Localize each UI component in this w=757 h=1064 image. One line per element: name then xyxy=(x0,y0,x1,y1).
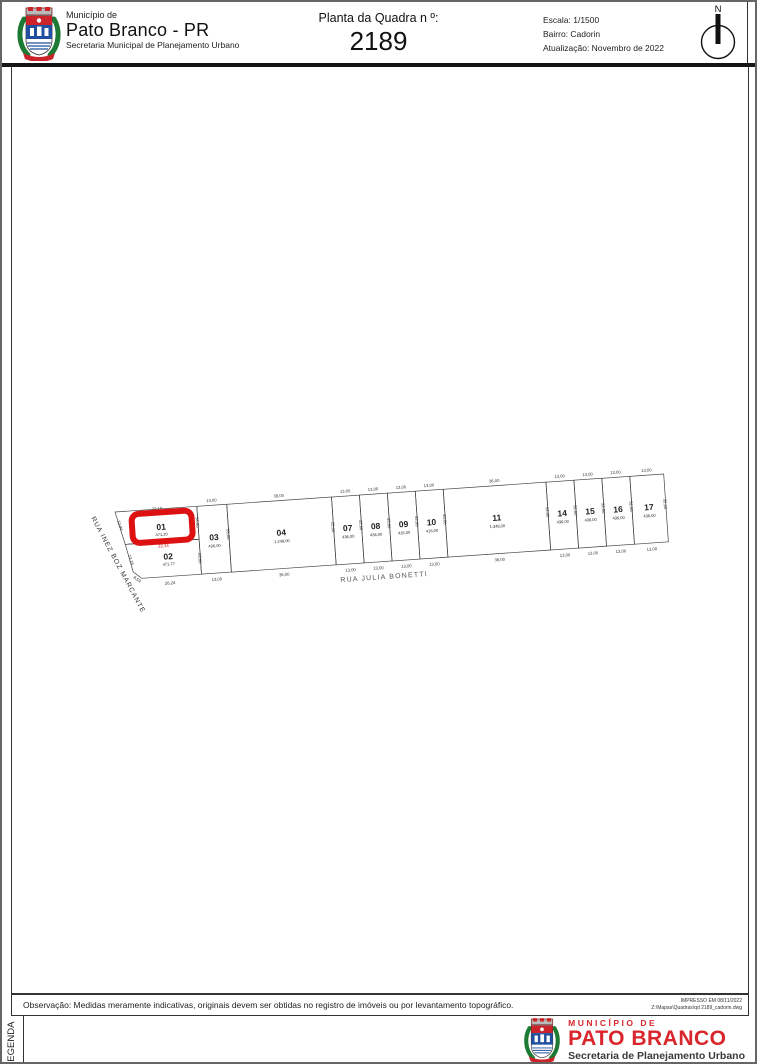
updated-label: Atualização: Novembro de 2022 xyxy=(543,41,664,55)
lot-number: 14 xyxy=(557,508,567,519)
sheet-title: Planta da Quadra n º: xyxy=(319,11,439,25)
legend-label: LEGENDA xyxy=(6,1022,17,1064)
dim-bottom: 13,00 xyxy=(373,565,384,571)
source-file-path: Z:\Mapas\Quadras\qd 2189_cadorin.dwg xyxy=(651,1005,742,1012)
header: Município de Pato Branco - PR Secretaria… xyxy=(2,2,755,63)
dim-top: 39,00 xyxy=(273,493,284,499)
footer: LEGENDA MUNICÍPIO DE PATO BRANCO Secret xyxy=(2,1016,755,1064)
lot-area: 1.248,00 xyxy=(274,538,291,544)
lot-area: 436,00 xyxy=(342,533,355,539)
lot-number: 11 xyxy=(492,512,502,523)
info-block: Escala: 1/1500 Bairro: Cadorin Atualizaç… xyxy=(543,13,664,55)
footer-logo: MUNICÍPIO DE PATO BRANCO Secretaria de P… xyxy=(523,1018,745,1063)
observation-note: Observação: Medidas meramente indicativa… xyxy=(23,1000,513,1010)
dim-top: 13,00 xyxy=(396,484,407,490)
lot-number: 16 xyxy=(613,504,623,515)
dim-bottom: 13,00 xyxy=(616,548,627,554)
lot-number: 01 xyxy=(156,522,166,533)
lot-area: 1.348,00 xyxy=(489,523,506,529)
title-block: Planta da Quadra n º: 2189 xyxy=(319,11,439,57)
lot-number: 03 xyxy=(209,532,219,543)
coat-of-arms-icon xyxy=(16,7,62,61)
dim-corner-chamfer: 8,59 xyxy=(132,575,142,584)
coat-of-arms-icon xyxy=(523,1018,561,1063)
block-plat-map: RUA INEZ BOZ MARCANTE 01 471,20 02 471,7… xyxy=(77,442,697,642)
dim-bottom: 13,00 xyxy=(345,567,356,573)
lot-area: 436,00 xyxy=(612,515,625,521)
dim-top: 13,00 xyxy=(424,482,435,488)
lot-area: 436,00 xyxy=(208,543,221,549)
drawing-area: RUA INEZ BOZ MARCANTE 01 471,20 02 471,7… xyxy=(11,66,749,994)
dim-top: 13,00 xyxy=(582,471,593,477)
legend-divider-line xyxy=(23,1016,24,1064)
dim-side: 32,00 xyxy=(662,499,668,510)
dim-top: 13,00 xyxy=(206,497,217,503)
plan-sheet: Município de Pato Branco - PR Secretaria… xyxy=(0,0,757,1064)
lot-number: 10 xyxy=(426,517,436,528)
dim-bottom: 36,00 xyxy=(494,557,505,563)
dim-top: 13,00 xyxy=(368,486,379,492)
municipality-block: Município de Pato Branco - PR Secretaria… xyxy=(66,11,239,50)
lot-area: 436,00 xyxy=(584,517,597,523)
street-label-left: RUA INEZ BOZ MARCANTE xyxy=(89,516,146,615)
header-border-line xyxy=(747,2,748,66)
dim-top: 36,00 xyxy=(489,478,500,484)
lot-number: 08 xyxy=(371,521,381,532)
lot-area: 416,00 xyxy=(426,528,439,534)
lot-number: 07 xyxy=(343,523,353,534)
lot-area: 436,00 xyxy=(556,519,569,525)
lot-number: 15 xyxy=(585,506,595,517)
district-label: Bairro: Cadorin xyxy=(543,27,664,41)
print-info: IMPRESSO EM 08/11/2022 Z:\Mapas\Quadras\… xyxy=(651,998,742,1012)
dim-top: 13,00 xyxy=(641,467,652,473)
dim-bottom: 13,00 xyxy=(211,576,222,582)
dim-top: 13,00 xyxy=(554,473,565,479)
dim-bottom: 13,00 xyxy=(429,561,440,567)
north-label: N xyxy=(715,4,722,15)
lot-area: 471,77 xyxy=(162,561,175,567)
lot-number: 17 xyxy=(644,502,654,513)
footer-pato-branco: PATO BRANCO xyxy=(568,1028,745,1050)
department-label: Secretaria Municipal de Planejamento Urb… xyxy=(66,41,239,50)
dim-bottom: 13,00 xyxy=(401,563,412,569)
scale-label: Escala: 1/1500 xyxy=(543,13,664,27)
dim-bottom: 13,00 xyxy=(588,550,599,556)
footer-logo-text: MUNICÍPIO DE PATO BRANCO Secretaria de P… xyxy=(568,1019,745,1062)
dim-top: 13,00 xyxy=(340,488,351,494)
lot-number: 09 xyxy=(398,519,408,530)
lot-area: 416,00 xyxy=(398,530,411,536)
printed-date: IMPRESSO EM 08/11/2022 xyxy=(651,998,742,1005)
dim-bottom: 13,00 xyxy=(560,552,571,558)
dim-bottom: 36,00 xyxy=(279,572,290,578)
dim-bottom: 13,00 xyxy=(646,546,657,552)
lot-area: 436,00 xyxy=(643,513,656,519)
dim-lot01-left: 12,94 xyxy=(116,520,124,532)
lot-area: 436,00 xyxy=(370,532,383,538)
lot-number: 02 xyxy=(163,551,173,562)
municipality-name: Pato Branco - PR xyxy=(66,21,239,41)
north-arrow-icon: N xyxy=(696,3,740,63)
dim-lot02-bottom: 26,24 xyxy=(165,580,176,586)
lot-area: 471,20 xyxy=(155,531,168,537)
lot-number: 04 xyxy=(276,527,286,538)
street-label-bottom: RUA JULIA BONETTI xyxy=(340,571,428,584)
block-number: 2189 xyxy=(319,26,439,57)
footer-secretaria: Secretaria de Planejamento Urbano xyxy=(568,1051,745,1062)
note-strip: Observação: Medidas meramente indicativa… xyxy=(11,994,749,1016)
dim-lot02-left: 13,16 xyxy=(127,554,135,566)
dim-top: 13,00 xyxy=(610,469,621,475)
